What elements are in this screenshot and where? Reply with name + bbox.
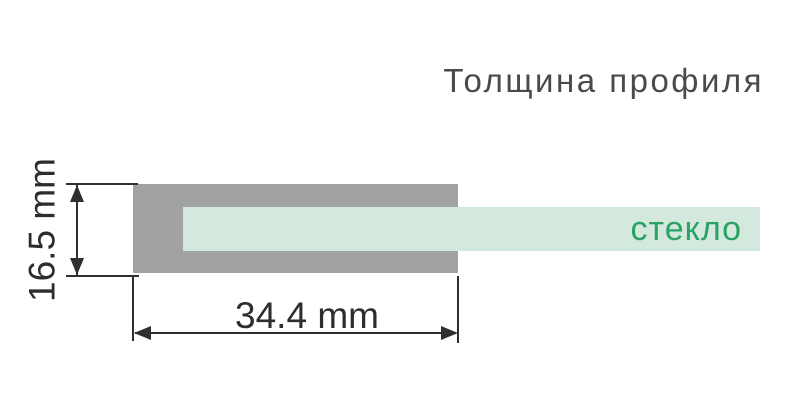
page-title: Толщина профиля [443,62,764,100]
profile-thickness-diagram: Толщина профиля стекло 16.5 mm 34.4 mm [0,0,800,413]
width-dimension-label: 34.4 mm [235,297,379,334]
arrow-left-icon [134,326,151,340]
arrow-down-icon [70,258,84,275]
height-extension-line-bottom [66,275,139,277]
height-dimension-label: 16.5 mm [24,158,61,302]
glass-bar: стекло [183,207,760,251]
arrow-right-icon [441,326,458,340]
glass-label: стекло [631,212,743,246]
arrow-up-icon [70,185,84,202]
